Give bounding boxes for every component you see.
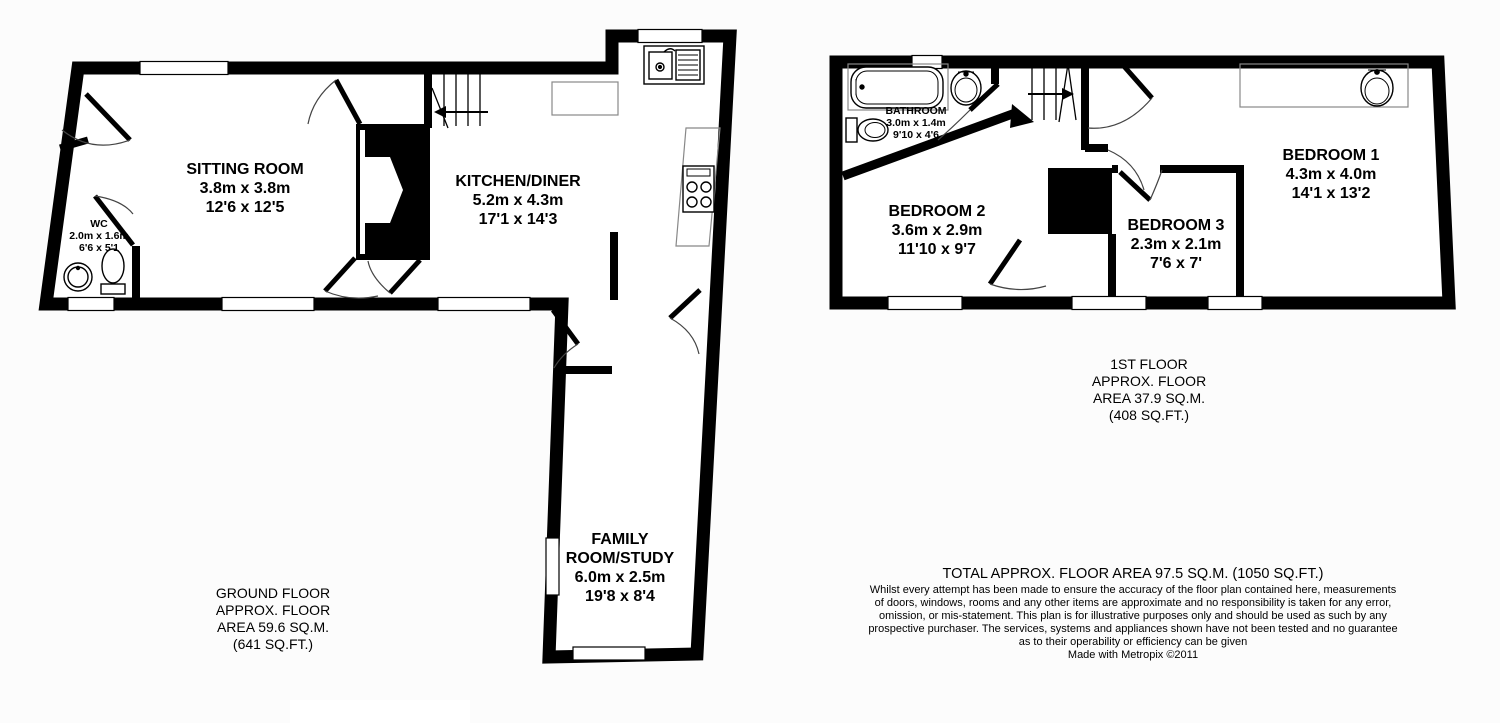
footer: TOTAL APPROX. FLOOR AREA 97.5 SQ.M. (105… <box>733 565 1500 662</box>
bedroom1-basin-icon <box>1361 70 1393 106</box>
total-floor-area: TOTAL APPROX. FLOOR AREA 97.5 SQ.M. (105… <box>733 565 1500 584</box>
disclaimer-text: Whilst every attempt has been made to en… <box>733 584 1500 649</box>
room-name: FAMILY ROOM/STUDY <box>566 530 674 568</box>
bathroom-basin-icon <box>951 71 981 105</box>
room-name: SITTING ROOM <box>186 160 303 179</box>
kitchen-sink-icon <box>644 46 704 84</box>
toilet-icon <box>846 118 888 142</box>
bathtub-icon <box>851 67 943 108</box>
room-label-kitchen-diner: KITCHEN/DINER 5.2m x 4.3m 17'1 x 14'3 <box>455 172 580 229</box>
room-size-metric: 2.3m x 2.1m <box>1128 235 1225 254</box>
room-size-metric: 5.2m x 4.3m <box>455 191 580 210</box>
room-name: WC <box>69 218 129 230</box>
room-name: BEDROOM 1 <box>1283 146 1380 165</box>
room-label-bathroom: BATHROOM 3.0m x 1.4m 9'10 x 4'6 <box>885 105 946 141</box>
room-size-imperial: 19'8 x 8'4 <box>566 587 674 606</box>
room-size-metric: 2.0m x 1.6m <box>69 230 129 242</box>
window <box>68 298 114 311</box>
ground-floor-caption: GROUND FLOOR APPROX. FLOOR AREA 59.6 SQ.… <box>216 585 330 653</box>
chimney-breast <box>356 124 430 260</box>
room-size-imperial: 7'6 x 7' <box>1128 254 1225 273</box>
room-size-imperial: 11'10 x 9'7 <box>889 240 986 259</box>
room-size-metric: 6.0m x 2.5m <box>566 568 674 587</box>
room-name: BEDROOM 3 <box>1128 216 1225 235</box>
room-size-metric: 3.6m x 2.9m <box>889 221 986 240</box>
room-size-imperial: 6'6 x 5'1 <box>69 242 129 254</box>
room-label-bedroom-2: BEDROOM 2 3.6m x 2.9m 11'10 x 9'7 <box>889 202 986 259</box>
wc-basin-icon <box>64 263 92 291</box>
cooker-icon <box>683 166 714 212</box>
window <box>1208 297 1262 310</box>
room-size-metric: 3.8m x 3.8m <box>186 179 303 198</box>
window <box>888 297 962 310</box>
room-label-bedroom-3: BEDROOM 3 2.3m x 2.1m 7'6 x 7' <box>1128 216 1225 273</box>
room-size-imperial: 9'10 x 4'6 <box>885 129 946 141</box>
room-size-imperial: 17'1 x 14'3 <box>455 210 580 229</box>
room-name: KITCHEN/DINER <box>455 172 580 191</box>
wc-toilet-icon <box>101 249 125 294</box>
window <box>1072 297 1146 310</box>
room-size-metric: 4.3m x 4.0m <box>1283 165 1380 184</box>
window <box>438 298 530 311</box>
first-floor-caption: 1ST FLOOR APPROX. FLOOR AREA 37.9 SQ.M. … <box>1092 356 1206 424</box>
room-label-bedroom-1: BEDROOM 1 4.3m x 4.0m 14'1 x 13'2 <box>1283 146 1380 203</box>
window <box>222 298 314 311</box>
chimney-breast <box>1048 168 1112 234</box>
window <box>638 30 702 43</box>
window <box>140 62 228 75</box>
room-size-imperial: 14'1 x 13'2 <box>1283 184 1380 203</box>
room-name: BEDROOM 2 <box>889 202 986 221</box>
room-name: BATHROOM <box>885 105 946 117</box>
window <box>573 647 645 660</box>
room-label-wc: WC 2.0m x 1.6m 6'6 x 5'1 <box>69 218 129 254</box>
floorplan-page: SITTING ROOM 3.8m x 3.8m 12'6 x 12'5 KIT… <box>0 0 1500 723</box>
metropix-credit: Made with Metropix ©2011 <box>733 649 1500 662</box>
window <box>546 538 559 595</box>
room-size-metric: 3.0m x 1.4m <box>885 117 946 129</box>
room-label-sitting-room: SITTING ROOM 3.8m x 3.8m 12'6 x 12'5 <box>186 160 303 217</box>
watermark-box <box>290 700 470 723</box>
room-size-imperial: 12'6 x 12'5 <box>186 198 303 217</box>
room-label-family-room: FAMILY ROOM/STUDY 6.0m x 2.5m 19'8 x 8'4 <box>566 530 674 606</box>
